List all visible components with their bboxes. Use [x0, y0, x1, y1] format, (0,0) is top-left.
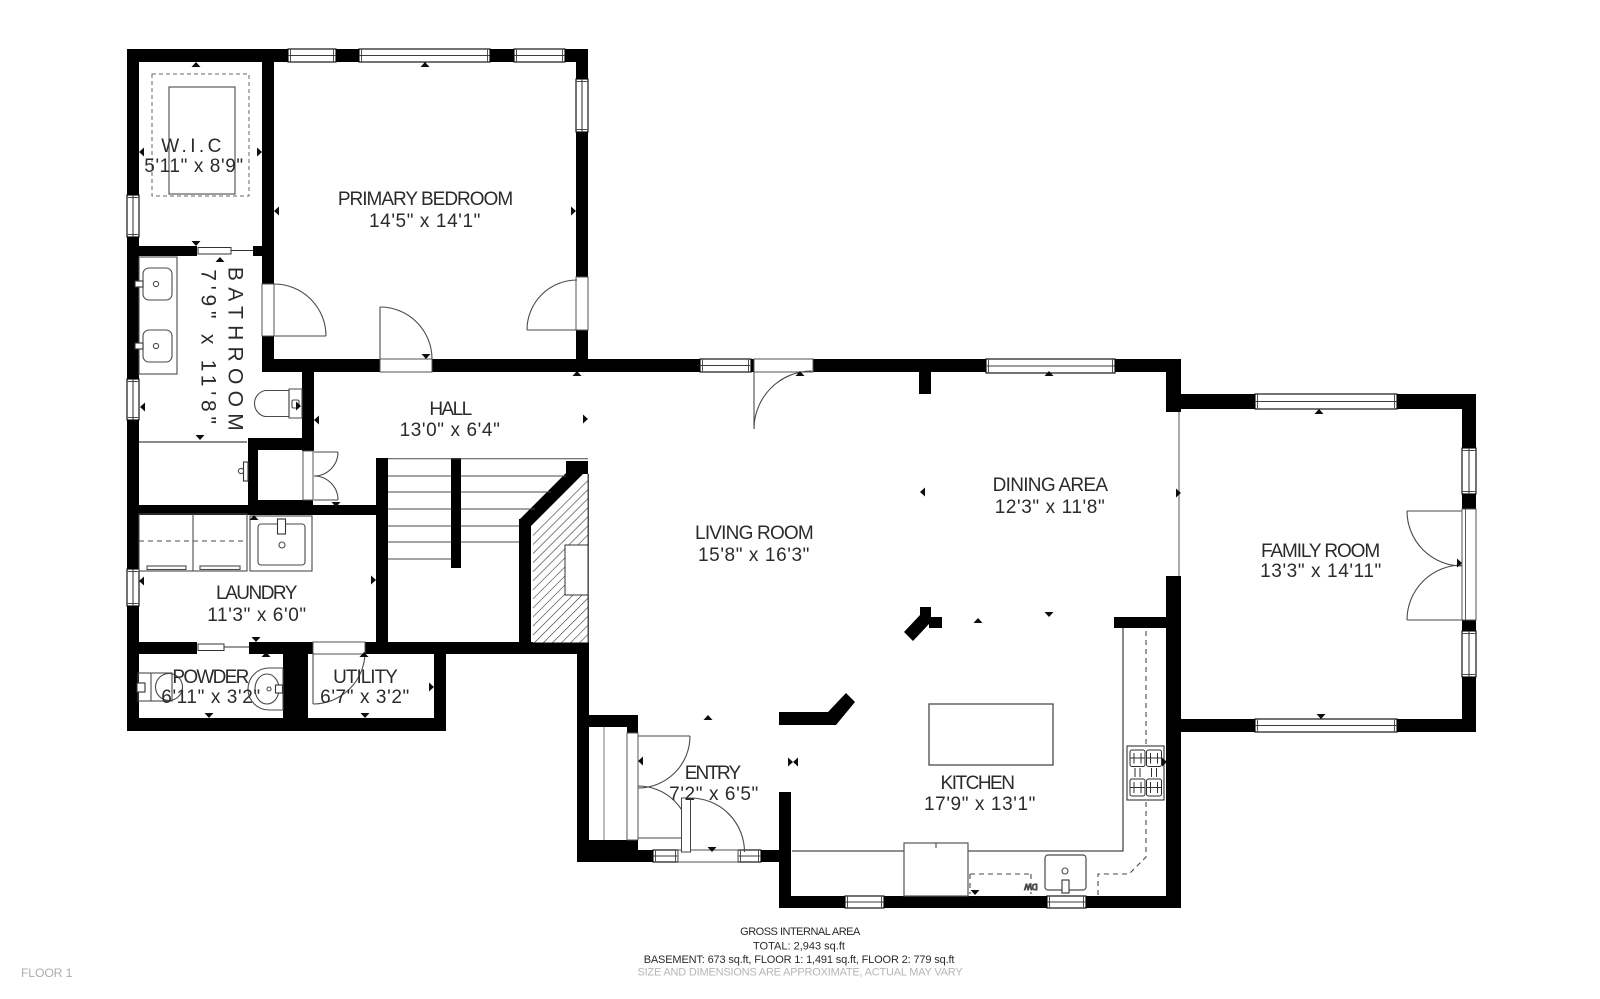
svg-text:FLOOR 1: FLOOR 1: [21, 966, 73, 980]
svg-text:W.I.C: W.I.C: [161, 136, 224, 157]
svg-text:UTILITY: UTILITY: [333, 667, 398, 688]
svg-text:13'3" x 14'11": 13'3" x 14'11": [1260, 561, 1382, 582]
svg-text:17'9" x 13'1": 17'9" x 13'1": [924, 794, 1036, 815]
svg-text:5'11" x 8'9": 5'11" x 8'9": [144, 156, 243, 177]
svg-text:DINING AREA: DINING AREA: [993, 475, 1109, 496]
svg-text:FAMILY ROOM: FAMILY ROOM: [1261, 541, 1379, 562]
svg-text:BASEMENT: 673 sq.ft, FLOOR 1:: BASEMENT: 673 sq.ft, FLOOR 1: 1,491 sq.f…: [644, 954, 955, 966]
svg-text:DW: DW: [1024, 882, 1038, 891]
svg-text:7'9" x 11'8": 7'9" x 11'8": [197, 269, 220, 429]
svg-text:GROSS INTERNAL AREA: GROSS INTERNAL AREA: [740, 926, 861, 938]
svg-text:14'5" x 14'1": 14'5" x 14'1": [369, 211, 481, 232]
svg-text:HALL: HALL: [429, 399, 471, 420]
svg-text:15'8" x 16'3": 15'8" x 16'3": [698, 545, 810, 566]
svg-text:7'2" x 6'5": 7'2" x 6'5": [669, 784, 759, 805]
svg-text:SIZE AND DIMENSIONS ARE APPROX: SIZE AND DIMENSIONS ARE APPROXIMATE, ACT…: [638, 967, 964, 979]
svg-text:12'3" x 11'8": 12'3" x 11'8": [995, 497, 1106, 518]
svg-text:KITCHEN: KITCHEN: [941, 773, 1015, 794]
svg-text:ENTRY: ENTRY: [685, 763, 742, 784]
svg-text:13'0" x 6'4": 13'0" x 6'4": [400, 420, 501, 441]
svg-text:BATHROOM: BATHROOM: [224, 267, 247, 437]
svg-text:PRIMARY BEDROOM: PRIMARY BEDROOM: [338, 189, 513, 210]
svg-text:LAUNDRY: LAUNDRY: [216, 583, 298, 604]
svg-text:6'11" x 3'2": 6'11" x 3'2": [161, 687, 260, 708]
svg-text:TOTAL: 2,943 sq.ft: TOTAL: 2,943 sq.ft: [753, 941, 845, 953]
svg-text:LIVING ROOM: LIVING ROOM: [695, 523, 813, 544]
svg-text:6'7" x 3'2": 6'7" x 3'2": [320, 687, 410, 708]
svg-text:POWDER: POWDER: [172, 667, 248, 688]
svg-text:11'3" x 6'0": 11'3" x 6'0": [207, 605, 306, 626]
